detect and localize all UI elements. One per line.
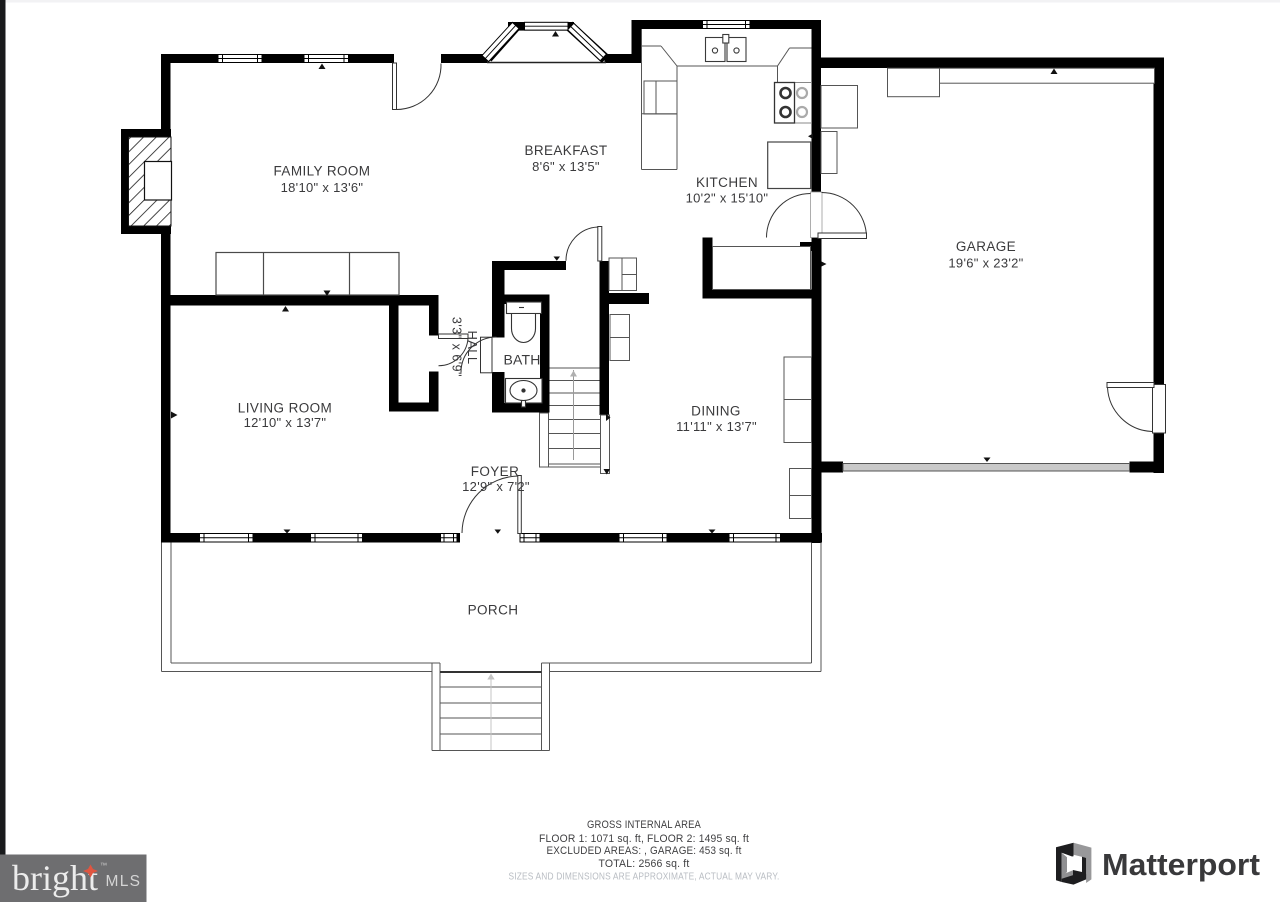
svg-text:8'6" x 13'5": 8'6" x 13'5" <box>532 159 600 174</box>
svg-text:LIVING ROOM: LIVING ROOM <box>238 401 332 416</box>
svg-text:GARAGE: GARAGE <box>956 239 1016 254</box>
svg-text:12'9" x 7'2": 12'9" x 7'2" <box>462 479 530 494</box>
svg-text:11'11" x 13'7": 11'11" x 13'7" <box>676 419 757 434</box>
svg-text:FAMILY ROOM: FAMILY ROOM <box>274 164 371 179</box>
svg-text:19'6" x 23'2": 19'6" x 23'2" <box>948 256 1023 271</box>
svg-text:KITCHEN: KITCHEN <box>696 175 758 190</box>
svg-text:HALL: HALL <box>465 330 480 364</box>
svg-text:GROSS INTERNAL AREA: GROSS INTERNAL AREA <box>587 819 701 831</box>
svg-text:™: ™ <box>100 863 107 870</box>
svg-text:FLOOR 1: 1071 sq. ft, FLOOR 2:: FLOOR 1: 1071 sq. ft, FLOOR 2: 1495 sq. … <box>539 833 749 845</box>
svg-text:BREAKFAST: BREAKFAST <box>524 143 607 158</box>
svg-text:10'2" x 15'10": 10'2" x 15'10" <box>686 191 769 206</box>
svg-text:Matterport: Matterport <box>1102 847 1260 882</box>
svg-text:SIZES AND DIMENSIONS ARE APPRO: SIZES AND DIMENSIONS ARE APPROXIMATE, AC… <box>509 872 780 883</box>
svg-text:bright: bright <box>12 858 98 898</box>
svg-text:BATH: BATH <box>503 352 540 368</box>
svg-text:EXCLUDED AREAS: , GARAGE: 453: EXCLUDED AREAS: , GARAGE: 453 sq. ft <box>547 845 742 857</box>
svg-text:18'10" x 13'6": 18'10" x 13'6" <box>281 180 364 195</box>
svg-text:12'10" x 13'7": 12'10" x 13'7" <box>244 415 327 430</box>
svg-text:DINING: DINING <box>691 404 741 419</box>
svg-text:MLS: MLS <box>106 873 142 890</box>
svg-text:3'3" x 6'9": 3'3" x 6'9" <box>450 317 464 377</box>
svg-text:TOTAL: 2566 sq. ft: TOTAL: 2566 sq. ft <box>599 858 690 870</box>
svg-text:PORCH: PORCH <box>468 603 519 618</box>
svg-text:FOYER: FOYER <box>471 464 520 479</box>
